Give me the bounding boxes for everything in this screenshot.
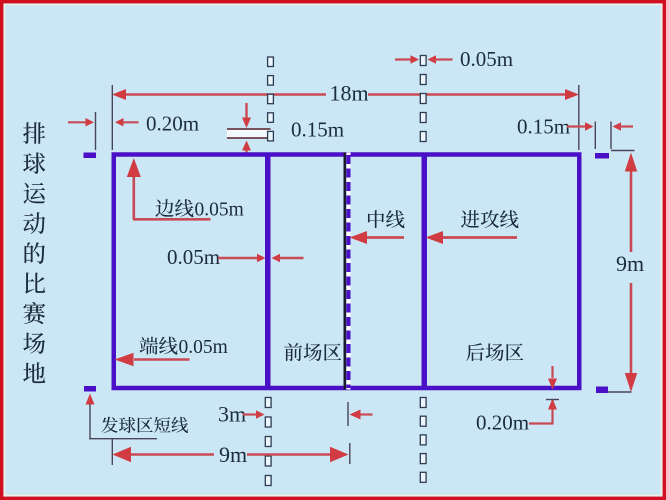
svg-text:0.05m: 0.05m xyxy=(195,200,244,221)
svg-text:18m: 18m xyxy=(329,81,368,106)
svg-text:0.15m: 0.15m xyxy=(291,118,344,142)
svg-text:0.05m: 0.05m xyxy=(167,245,220,269)
svg-text:0.05m: 0.05m xyxy=(460,47,513,71)
svg-text:0.05m: 0.05m xyxy=(179,337,228,358)
svg-text:9m: 9m xyxy=(616,251,644,276)
svg-text:9m: 9m xyxy=(219,442,247,467)
svg-text:0.20m: 0.20m xyxy=(476,411,529,435)
svg-text:0.15m: 0.15m xyxy=(517,115,570,139)
svg-text:0.20m: 0.20m xyxy=(146,112,199,136)
svg-text:3m: 3m xyxy=(218,402,246,427)
